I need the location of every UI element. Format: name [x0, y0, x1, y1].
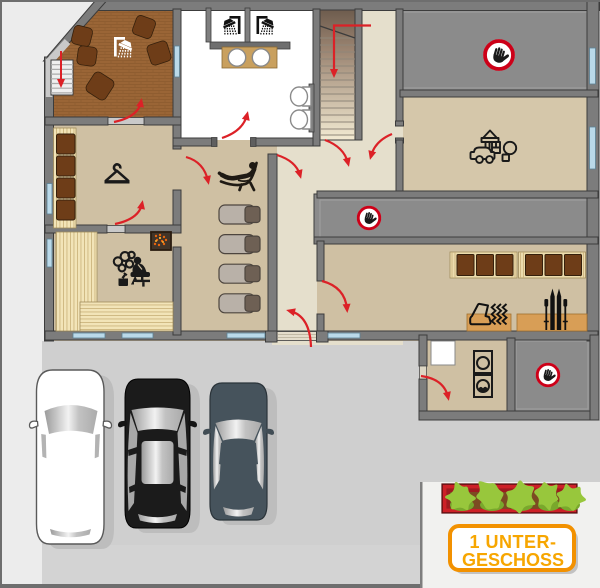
svg-text:GESCHOSS: GESCHOSS — [462, 550, 564, 570]
svg-text:1 UNTER-: 1 UNTER- — [469, 532, 556, 552]
